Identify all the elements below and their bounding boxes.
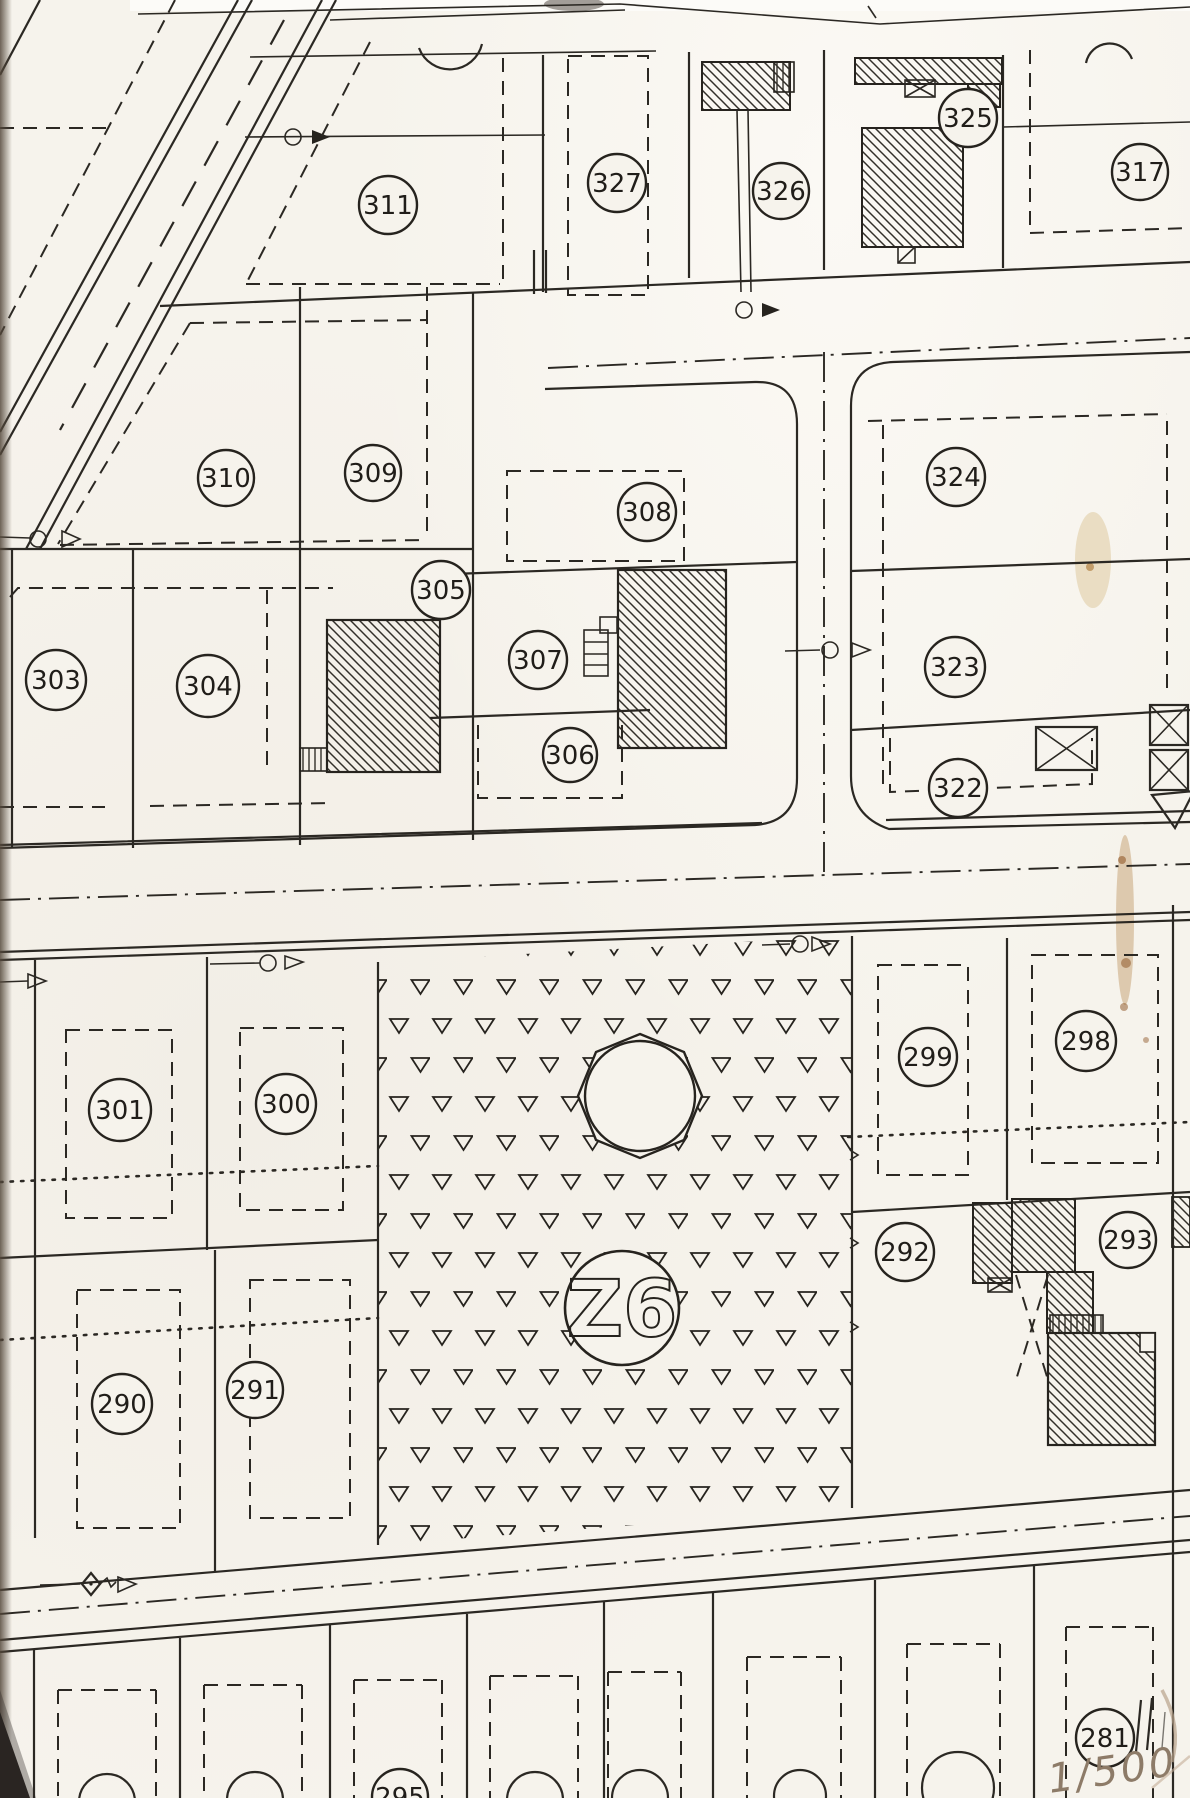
parcel-322-marker: 322 — [929, 759, 987, 817]
vertical-road-right-edge — [851, 352, 1190, 829]
parcel-325-label: 325 — [943, 104, 993, 134]
building-325-main — [862, 128, 963, 247]
building-292-a — [973, 1203, 1012, 1283]
parcel-298-label: 298 — [1061, 1027, 1111, 1057]
parcel-317-top-line — [1003, 122, 1190, 127]
stain-drop-1 — [1118, 856, 1126, 864]
sheet-top-border-line-2 — [330, 10, 625, 20]
parcel-327-label: 327 — [592, 169, 642, 199]
building-305-hatched — [327, 620, 440, 772]
parcel-326-label: 326 — [756, 177, 806, 207]
boundary-308-307 — [423, 562, 797, 575]
crossed-box-right-edge-2 — [1150, 750, 1188, 790]
parcel-291-label: 291 — [230, 1376, 280, 1406]
parcel-299-marker: 299 — [899, 1028, 957, 1086]
parcel-291-marker: 291 — [227, 1362, 283, 1418]
diagonal-road-median-dashes — [60, 20, 284, 430]
parcel-309-label: 309 — [348, 459, 398, 489]
boundary-row-301-290 — [0, 1240, 378, 1258]
diagonal-road-edge-4 — [40, 0, 336, 549]
boundary-324-323 — [851, 559, 1190, 571]
big-road-centerline — [0, 864, 1190, 900]
upper-road-centerline — [548, 338, 1190, 368]
survey-arrow-326 — [762, 303, 780, 317]
parcel-308-marker: 308 — [618, 483, 676, 541]
building-292-b — [1012, 1199, 1075, 1272]
zone-triangle-pattern — [378, 936, 858, 1545]
survey-line-311 — [245, 135, 545, 137]
parcel-306-label: 306 — [545, 741, 595, 771]
big-road-upper-boundary — [0, 811, 1190, 845]
dotted-line-301-300 — [0, 1166, 378, 1182]
parcel-304-marker: 304 — [177, 655, 239, 717]
parcel-327-marker: 327 — [588, 154, 646, 212]
parcel-310-label: 310 — [201, 464, 251, 494]
bottom-row-dashed-rects — [58, 1627, 1153, 1798]
dashed-cross-symbol — [1016, 1275, 1048, 1380]
parcel-293-label: 293 — [1103, 1226, 1153, 1256]
stain-parcel-324 — [1075, 512, 1111, 608]
stain-dot-324 — [1086, 563, 1094, 571]
upper-road-left-stub — [534, 250, 546, 294]
survey-arrow-311 — [312, 130, 330, 144]
parcel-317-dashed-south — [1030, 228, 1190, 233]
survey-line-300 — [210, 963, 260, 964]
survey-arrow-left-edge — [28, 974, 46, 988]
building-293-stairs — [1050, 1315, 1103, 1333]
parcel-303-304-dashed-north — [10, 588, 333, 597]
parcel-310-dashed-west — [58, 323, 190, 544]
parcel-309-marker: 309 — [345, 445, 401, 501]
stain-drop-4 — [1143, 1037, 1149, 1043]
left-parcels-dashed-boundary — [0, 0, 175, 335]
upper-road-top-edge — [160, 262, 1190, 306]
bottom-road-centerline — [0, 1516, 1190, 1614]
zone-label-circle: Z6 — [565, 1251, 679, 1365]
building-305-stairs — [300, 748, 327, 771]
building-293-notch — [1140, 1333, 1155, 1352]
partial-circle-top-right — [1086, 44, 1132, 63]
parcel-323-label: 323 — [930, 653, 980, 683]
well-octagon-symbol — [578, 1034, 702, 1158]
parcel-317-label: 317 — [1115, 158, 1165, 188]
bottom-road-lower-edge-2 — [0, 1552, 1190, 1652]
diagonal-road-edge-1 — [0, 0, 238, 432]
crossed-box-322 — [1036, 727, 1097, 770]
stain-drop-3 — [1120, 1003, 1128, 1011]
parcel-292-marker: 292 — [876, 1223, 934, 1281]
parcel-322-dashed — [890, 738, 1092, 792]
building-293-main — [1048, 1333, 1155, 1445]
dotted-line-290-291 — [0, 1318, 378, 1340]
boundary-323-322 — [851, 710, 1190, 730]
parcel-305-label: 305 — [416, 576, 466, 606]
parcel-295-marker: 295 — [372, 1769, 428, 1798]
zone-label-text: Z6 — [567, 1265, 678, 1355]
diamond-survey-marker — [40, 1573, 136, 1595]
parcel-306-marker: 306 — [543, 728, 597, 782]
parcel-298-marker: 298 — [1056, 1011, 1116, 1071]
parcel-307-marker: 307 — [509, 631, 567, 689]
parcel-299-label: 299 — [903, 1043, 953, 1073]
parcel-310-309-dashed-north — [190, 320, 427, 323]
big-road-lower-edge-1 — [0, 912, 1190, 952]
parcel-311-dashed-west — [246, 42, 370, 284]
bottom-road-lower-edge-1 — [0, 1540, 1190, 1640]
parcel-301-label: 301 — [95, 1096, 145, 1126]
scanned-map-page: Z6 — [0, 0, 1190, 1798]
driveway-326-lines — [737, 110, 751, 292]
parcel-307-label: 307 — [513, 646, 563, 676]
parcel-310-marker: 310 — [198, 450, 254, 506]
parcel-290-marker: 290 — [92, 1374, 152, 1434]
symbol-box-325 — [898, 247, 915, 263]
parcel-308-label: 308 — [622, 498, 672, 528]
parcel-324-marker: 324 — [927, 448, 985, 506]
building-right-edge-sliver — [1172, 1197, 1190, 1247]
parcels-303-304-dashed-south — [0, 803, 333, 807]
parcel-303-label: 303 — [31, 666, 81, 696]
survey-circle-300 — [260, 955, 276, 971]
paper-top-margin — [130, 0, 1190, 11]
building-307-hatched — [618, 570, 726, 748]
stain-drop-2 — [1121, 958, 1131, 968]
parcel-325-marker: 325 — [939, 89, 997, 147]
parcel-310-309-dashed-south — [60, 540, 427, 545]
diagonal-road-edge-3 — [26, 0, 322, 549]
parcel-295-label: 295 — [375, 1783, 425, 1798]
parcel-305-marker: 305 — [412, 561, 470, 619]
parcel-312-partial-circle — [419, 44, 482, 69]
bottom-row-boundaries — [34, 1566, 1034, 1798]
survey-circle-326 — [736, 302, 752, 318]
building-326-stairs — [774, 62, 794, 92]
parcel-293-marker: 293 — [1100, 1212, 1156, 1268]
parcel-300-label: 300 — [261, 1090, 311, 1120]
parcel-311-marker: 311 — [359, 176, 417, 234]
bottom-row-partial-circles — [79, 1752, 994, 1798]
parcel-300-marker: 300 — [256, 1074, 316, 1134]
dotted-line-299-298 — [848, 1122, 1190, 1137]
parcel-324-label: 324 — [931, 463, 981, 493]
parcel-311-label: 311 — [363, 191, 413, 221]
building-307-stairs — [584, 617, 617, 676]
survey-line-323 — [785, 650, 820, 651]
parcel-326-marker: 326 — [753, 163, 809, 219]
survey-arrow-300 — [285, 956, 303, 969]
parcel-301-marker: 301 — [89, 1079, 151, 1141]
parcel-324-dashed-north — [868, 414, 1167, 421]
survey-arrow-323 — [852, 643, 870, 657]
parcel-323-marker: 323 — [925, 637, 985, 697]
parcel-304-label: 304 — [183, 672, 233, 702]
scan-edge-left — [0, 0, 12, 1798]
parcel-292-label: 292 — [880, 1238, 930, 1268]
parcel-303-marker: 303 — [26, 650, 86, 710]
parcel-322-label: 322 — [933, 774, 983, 804]
cadastral-map: Z6 — [0, 0, 1190, 1798]
parcel-317-marker: 317 — [1112, 144, 1168, 200]
parcel-290-label: 290 — [97, 1390, 147, 1420]
